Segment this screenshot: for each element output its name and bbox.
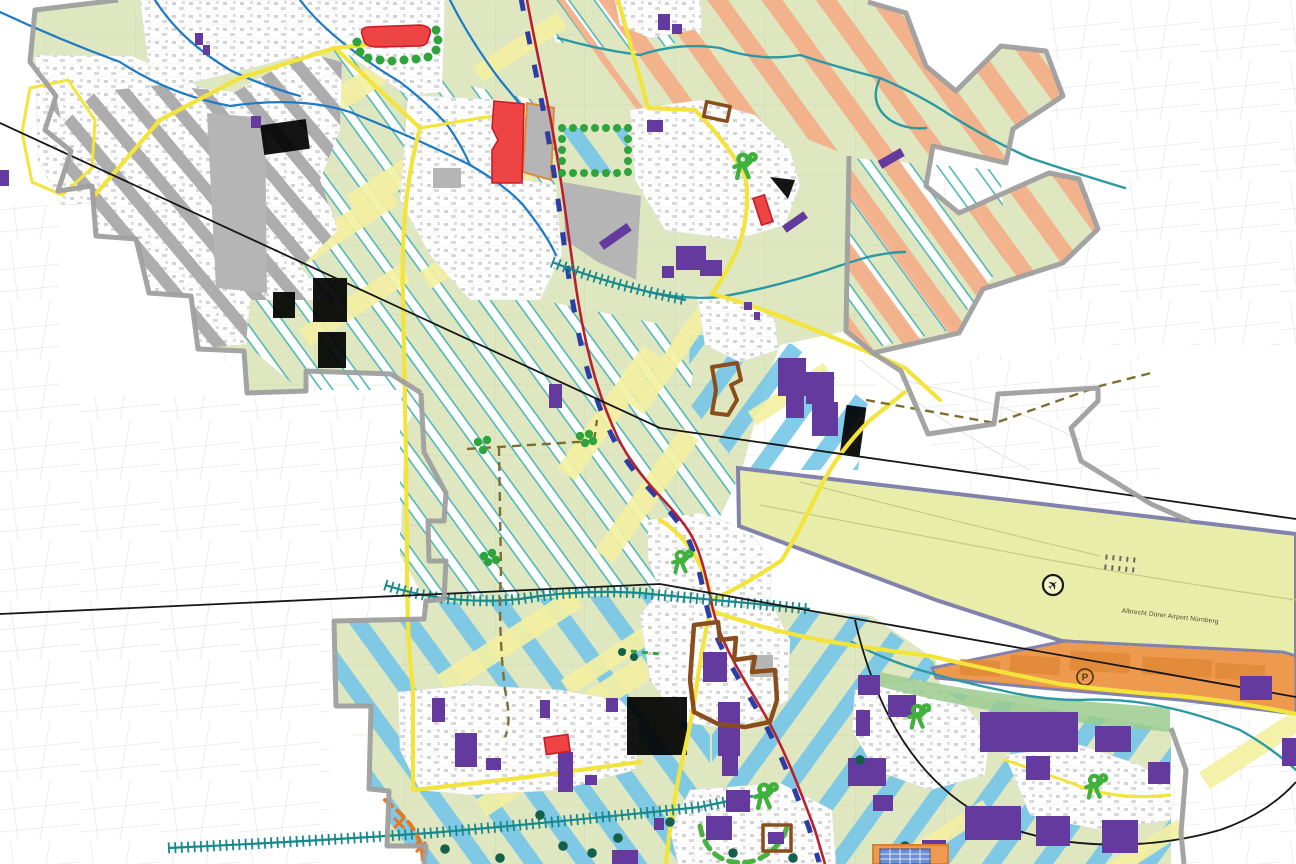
land-use-map-canvas[interactable]: ✈ Albrecht Dürer Airport Nürnberg P bbox=[0, 0, 1296, 864]
pool-facility bbox=[873, 845, 948, 864]
map-svg: ✈ Albrecht Dürer Airport Nürnberg P bbox=[0, 0, 1296, 864]
airport-icon: ✈ bbox=[1043, 575, 1063, 595]
svg-text:P: P bbox=[1082, 673, 1089, 684]
